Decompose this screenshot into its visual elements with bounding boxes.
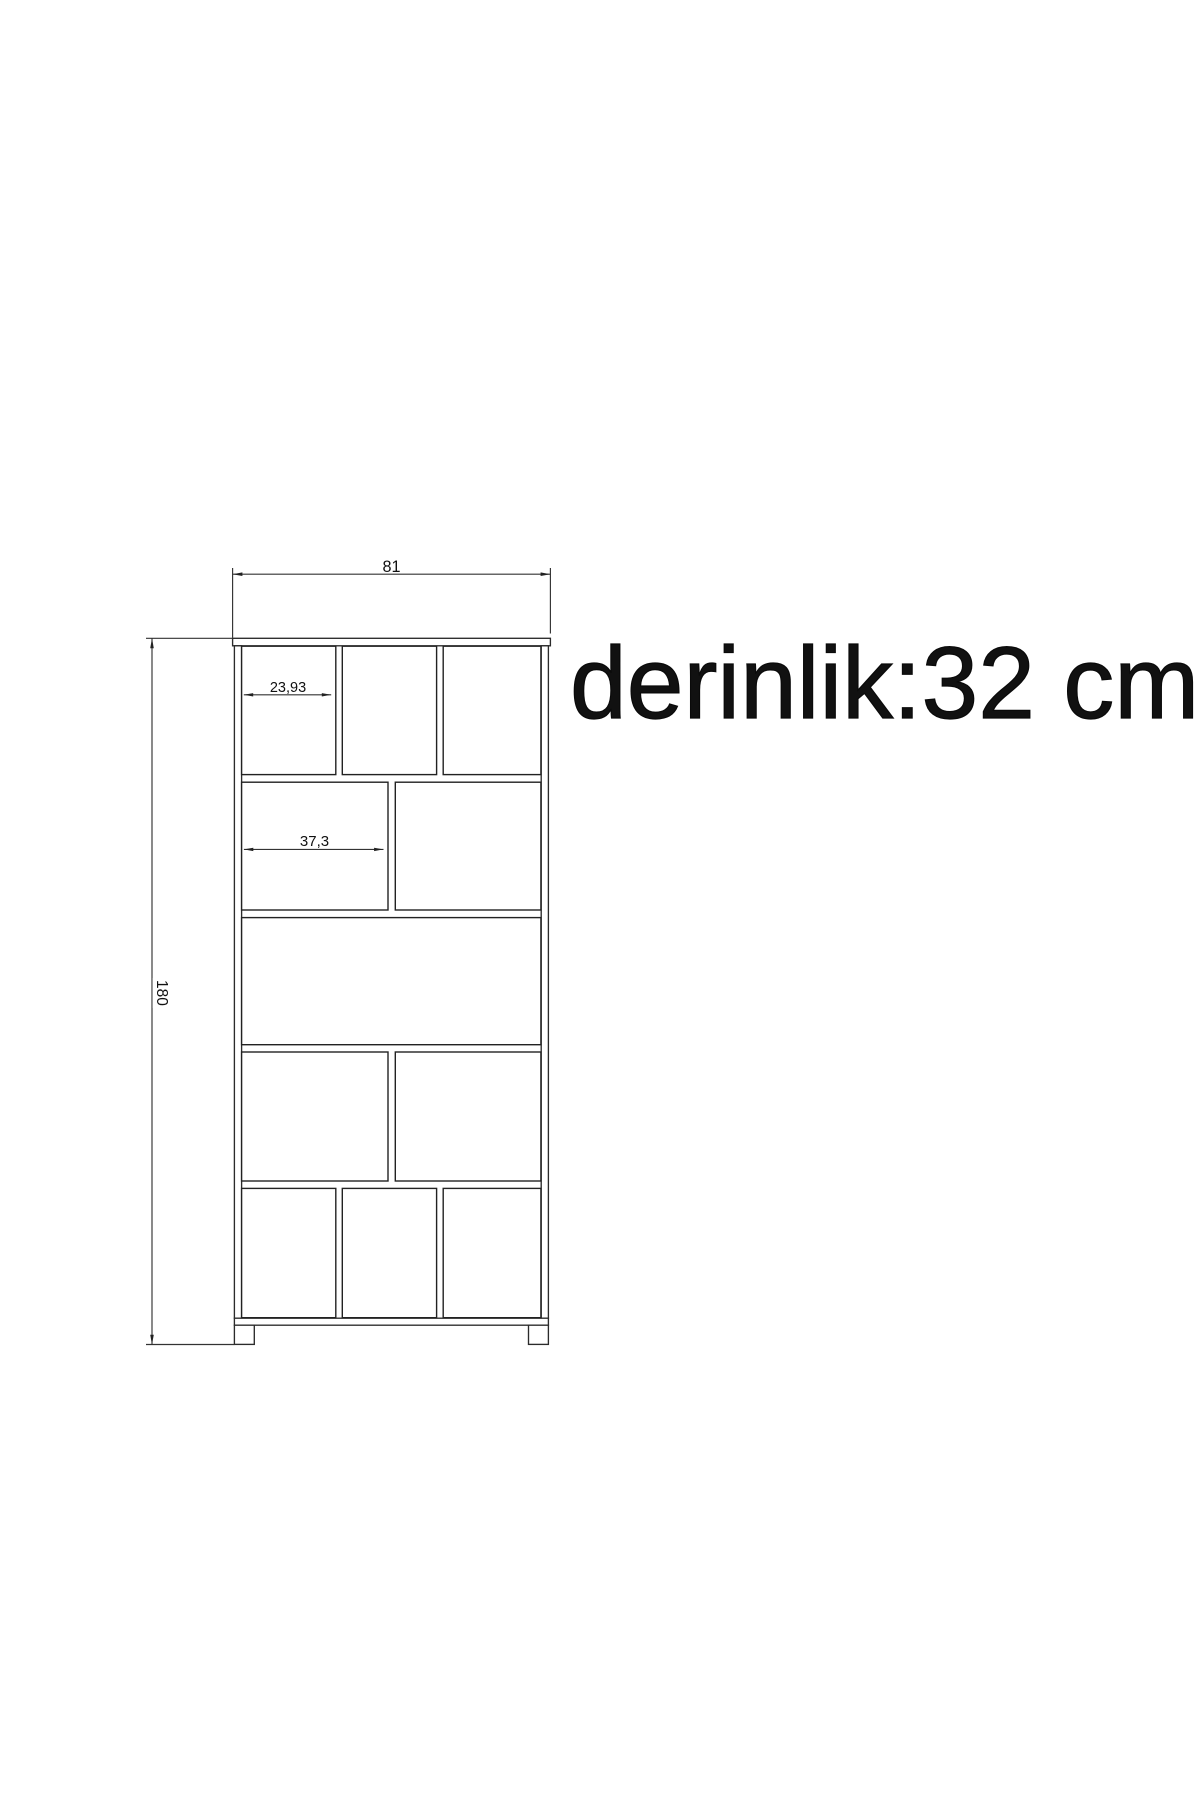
svg-text:180: 180	[153, 980, 170, 1006]
svg-text:81: 81	[382, 558, 400, 576]
svg-text:37,3: 37,3	[300, 833, 329, 850]
svg-text:23,93: 23,93	[270, 680, 306, 696]
svg-text:derinlik:32 cm: derinlik:32 cm	[570, 626, 1199, 740]
